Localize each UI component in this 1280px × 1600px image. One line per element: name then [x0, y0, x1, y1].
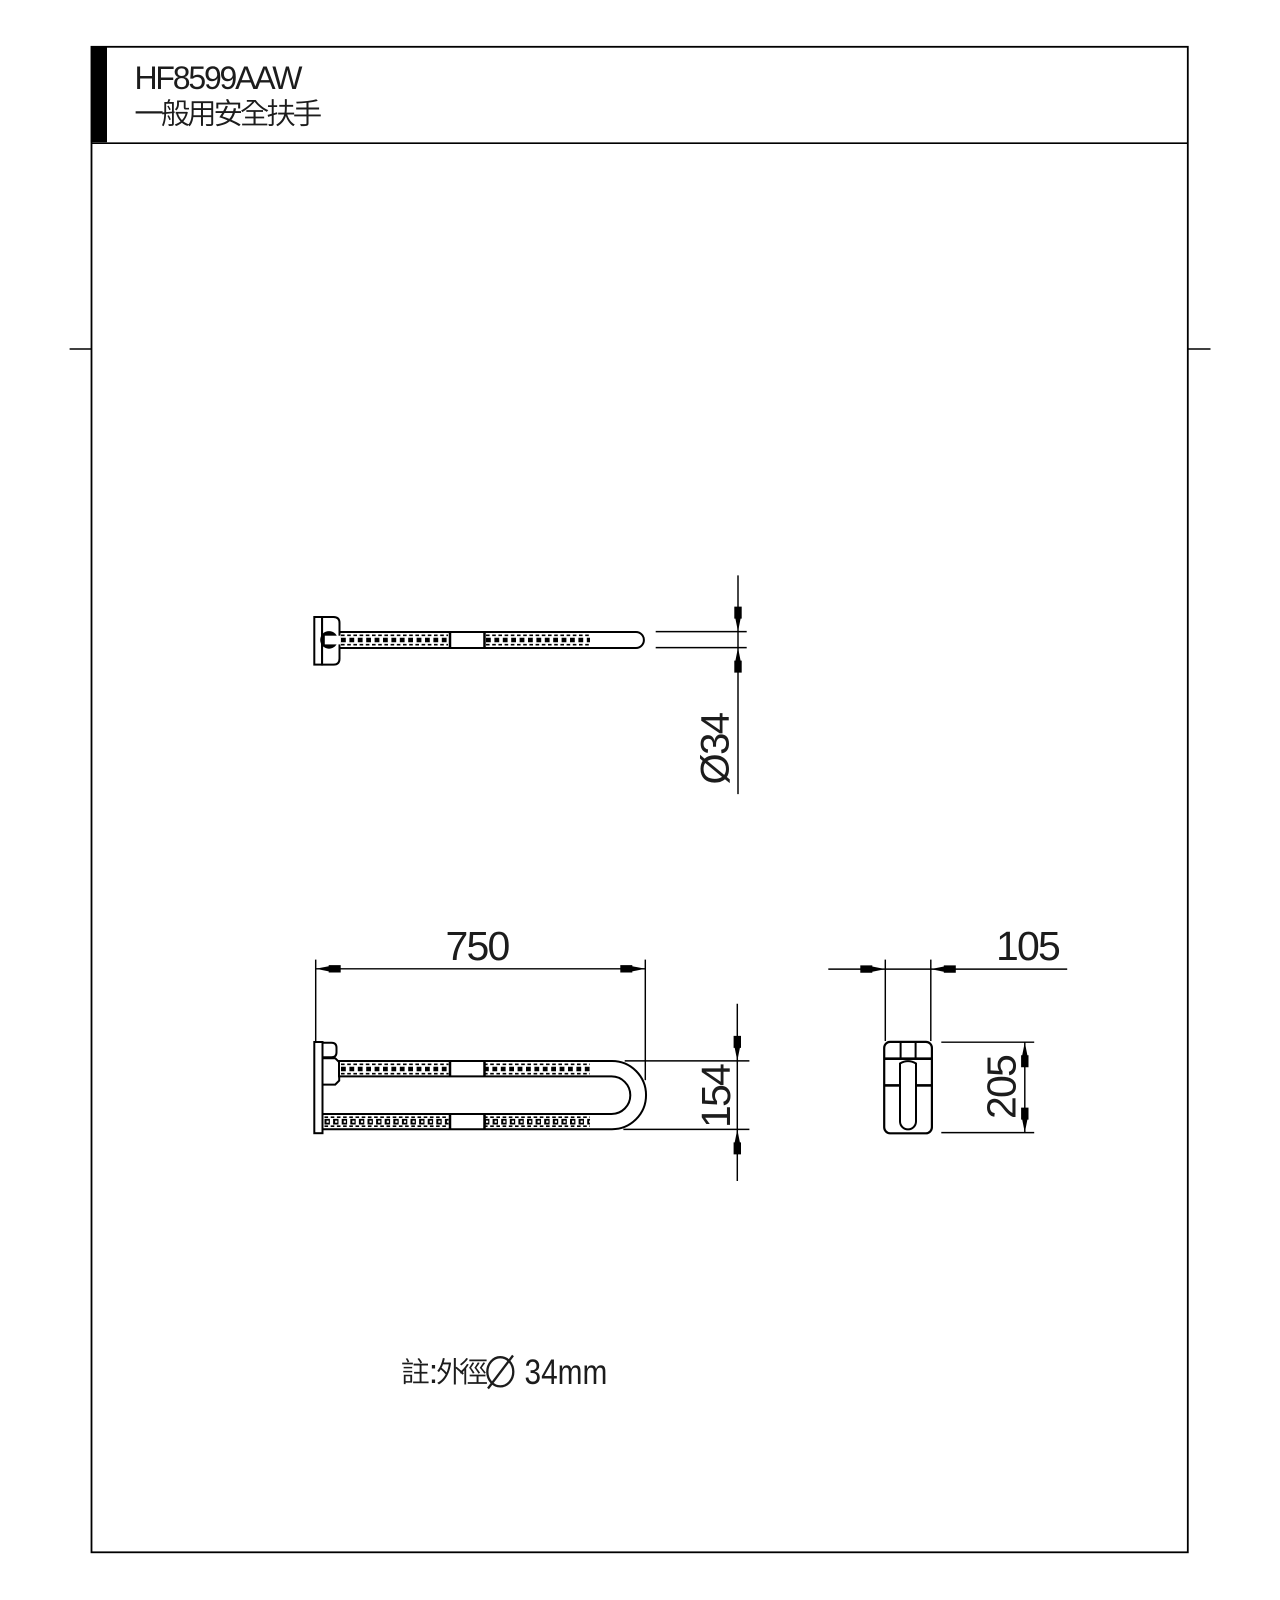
svg-text:105: 105: [996, 923, 1060, 969]
svg-text:34mm: 34mm: [525, 1352, 608, 1392]
svg-text:154: 154: [693, 1064, 739, 1128]
svg-text::: :: [429, 1353, 438, 1391]
svg-text:HF8599AAW: HF8599AAW: [135, 60, 304, 96]
svg-text:205: 205: [979, 1055, 1025, 1119]
svg-text:Ø34: Ø34: [694, 712, 738, 784]
svg-text:750: 750: [445, 923, 509, 969]
